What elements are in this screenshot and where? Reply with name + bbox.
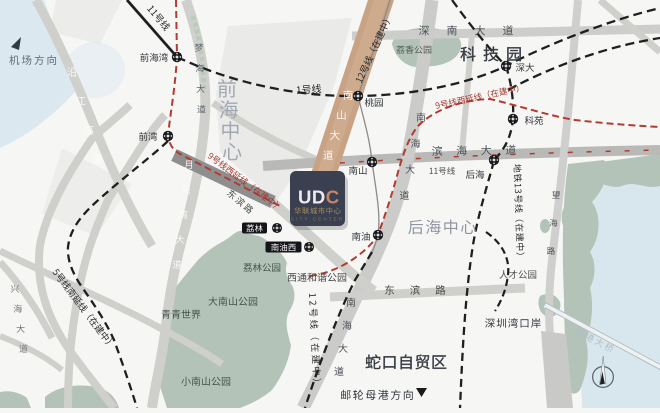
svg-text:CITY CENTER: CITY CENTER <box>291 217 344 222</box>
svg-text:UDC: UDC <box>298 187 340 208</box>
